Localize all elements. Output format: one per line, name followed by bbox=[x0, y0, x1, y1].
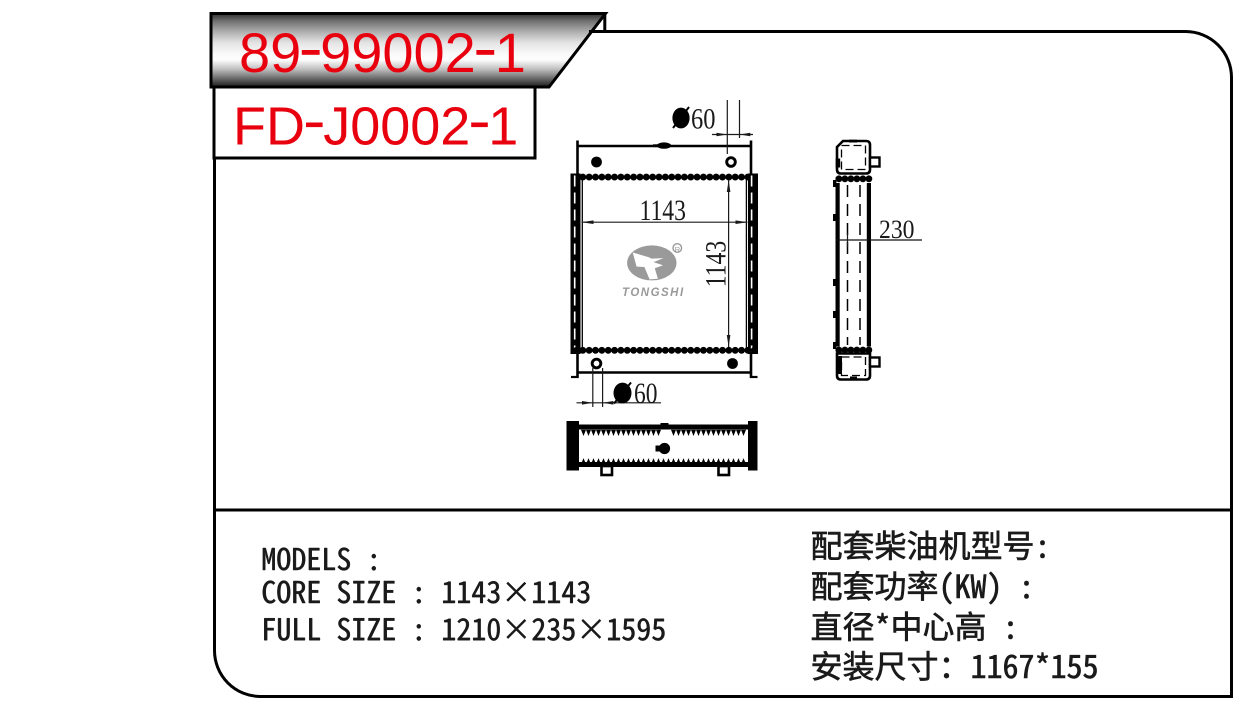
svg-text:99002: 99002 bbox=[320, 21, 476, 84]
svg-text:60: 60 bbox=[634, 378, 658, 410]
svg-text:TONGSHI: TONGSHI bbox=[622, 287, 685, 299]
svg-text:1143: 1143 bbox=[640, 195, 687, 227]
svg-text:J0002: J0002 bbox=[323, 97, 470, 157]
svg-text:230: 230 bbox=[879, 215, 915, 244]
svg-text:89: 89 bbox=[239, 21, 301, 84]
svg-text:1: 1 bbox=[488, 97, 518, 157]
svg-text:1143: 1143 bbox=[700, 241, 732, 288]
svg-text:R: R bbox=[675, 245, 681, 254]
svg-text:1: 1 bbox=[495, 21, 526, 84]
svg-text:60: 60 bbox=[691, 102, 716, 135]
svg-text:FD: FD bbox=[233, 97, 305, 157]
